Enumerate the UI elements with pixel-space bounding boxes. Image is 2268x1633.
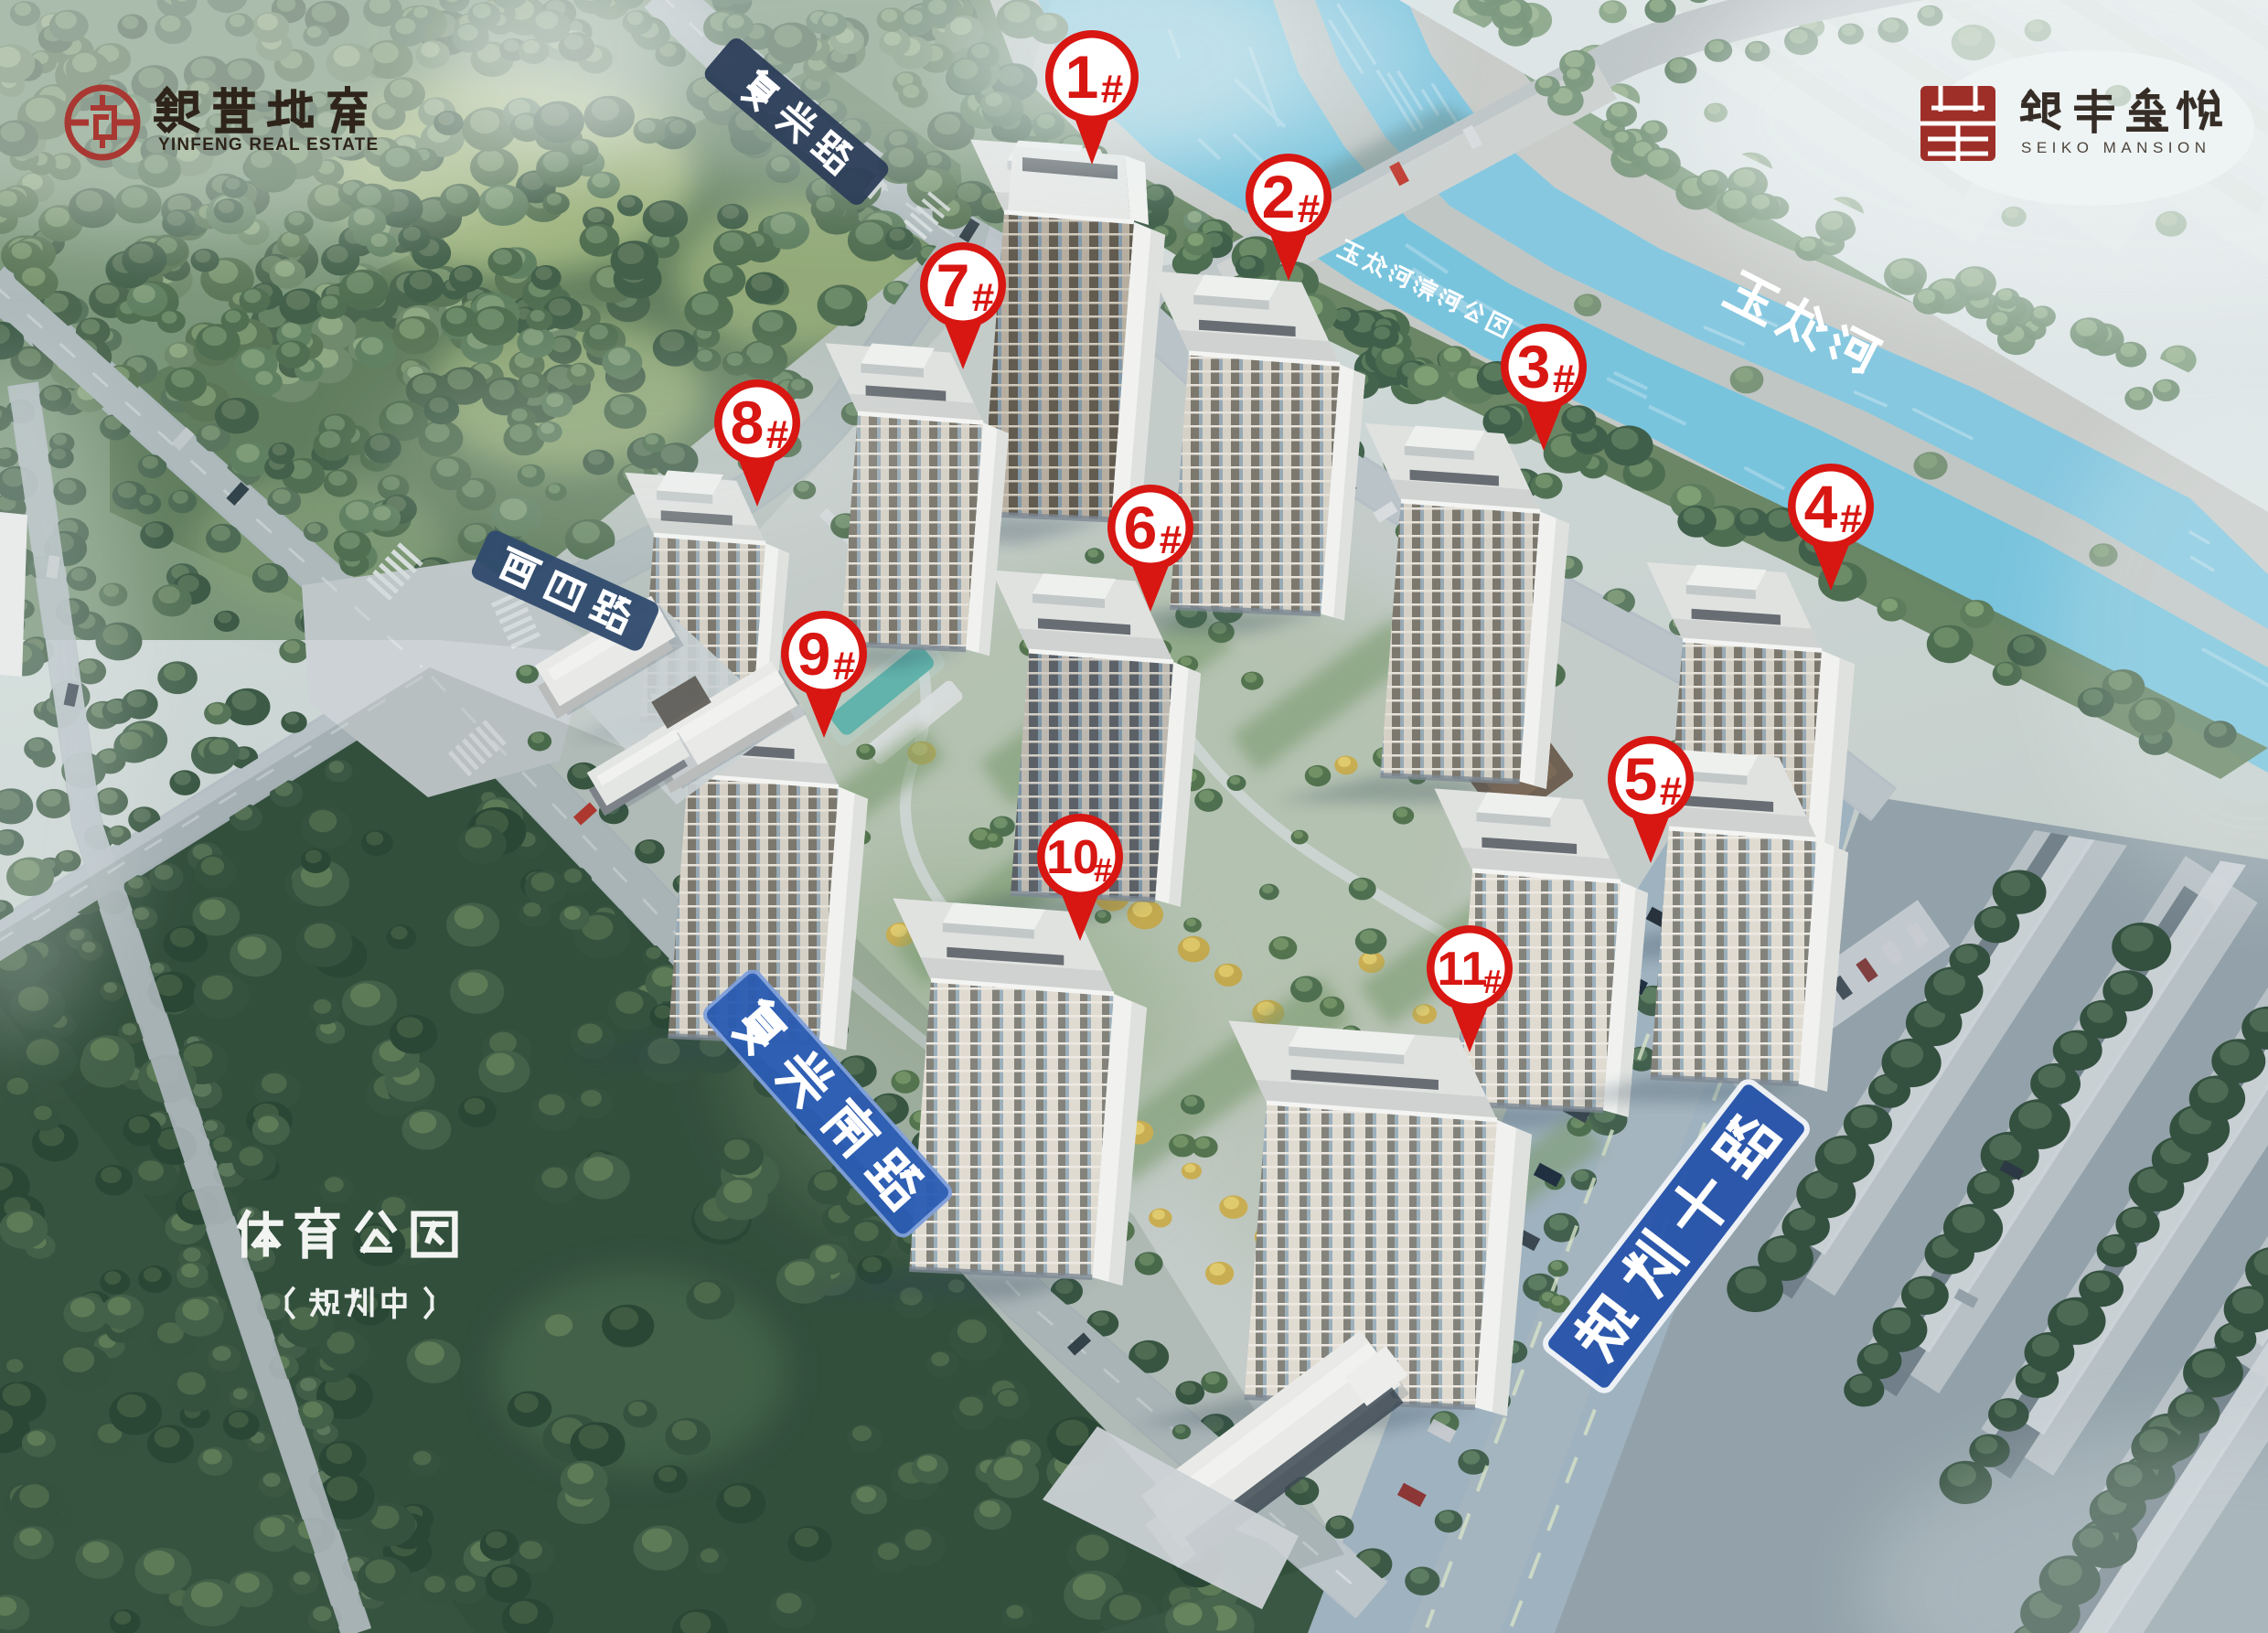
svg-text:#: # xyxy=(833,644,855,688)
svg-text:3: 3 xyxy=(1517,333,1551,400)
svg-text:#: # xyxy=(1094,851,1112,889)
svg-text:10: 10 xyxy=(1046,831,1099,884)
svg-text:11: 11 xyxy=(1438,943,1488,996)
svg-text:#: # xyxy=(766,412,788,457)
svg-text:1: 1 xyxy=(1065,43,1099,111)
svg-text:5: 5 xyxy=(1624,745,1658,813)
svg-text:#: # xyxy=(1660,769,1682,814)
svg-text:#: # xyxy=(1101,67,1123,112)
svg-text:6: 6 xyxy=(1124,494,1158,561)
svg-text:7: 7 xyxy=(936,251,970,319)
svg-text:9: 9 xyxy=(797,620,831,688)
svg-text:#: # xyxy=(1840,496,1862,541)
svg-text:#: # xyxy=(1553,357,1575,401)
svg-text:#: # xyxy=(1483,963,1502,1000)
svg-text:SEIKO MANSION: SEIKO MANSION xyxy=(2021,139,2211,156)
svg-text:#: # xyxy=(1160,518,1182,562)
svg-text:#: # xyxy=(972,275,994,320)
svg-text:2: 2 xyxy=(1262,163,1296,230)
svg-text:#: # xyxy=(1298,187,1320,231)
svg-text:8: 8 xyxy=(731,389,765,456)
svg-text:YINFENG REAL ESTATE: YINFENG REAL ESTATE xyxy=(158,135,379,155)
svg-text:4: 4 xyxy=(1804,473,1838,540)
